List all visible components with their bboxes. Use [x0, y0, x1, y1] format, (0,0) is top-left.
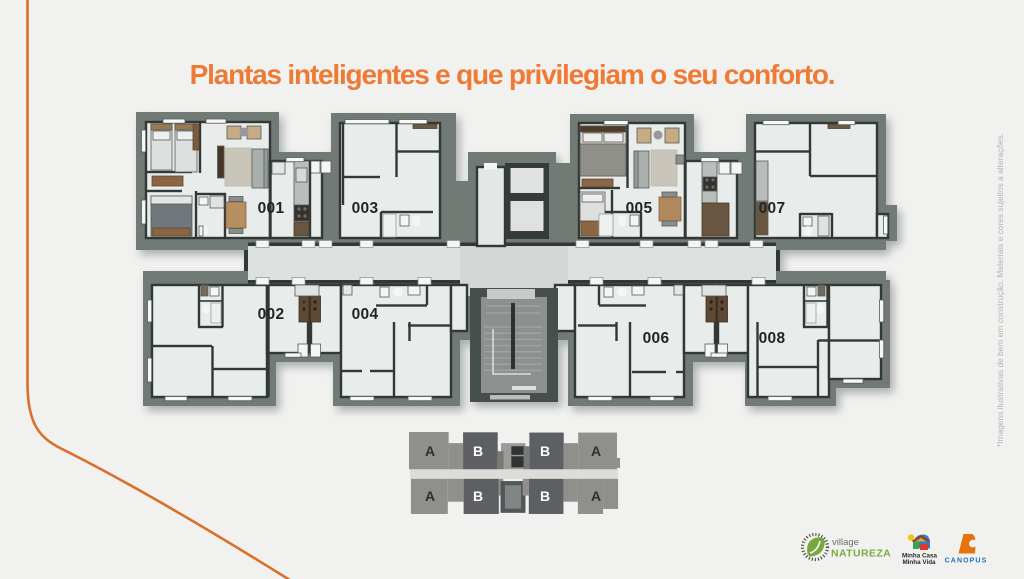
svg-text:A: A: [591, 443, 601, 459]
svg-text:Minha Vida: Minha Vida: [902, 559, 936, 566]
svg-text:B: B: [473, 443, 483, 459]
svg-text:A: A: [591, 488, 601, 504]
svg-text:Plantas inteligentes e que pri: Plantas inteligentes e que privilegiam o…: [190, 59, 835, 90]
svg-text:*Imagens ilustrativas de bem e: *Imagens ilustrativas de bem em construç…: [995, 133, 1005, 447]
svg-text:B: B: [473, 488, 483, 504]
svg-text:005: 005: [626, 200, 653, 217]
svg-text:village: village: [832, 537, 859, 548]
svg-text:NATUREZA: NATUREZA: [831, 548, 891, 560]
svg-text:A: A: [425, 443, 435, 459]
svg-text:004: 004: [352, 306, 379, 323]
svg-text:008: 008: [759, 330, 786, 347]
svg-text:006: 006: [643, 330, 670, 347]
svg-text:003: 003: [352, 200, 379, 217]
svg-text:007: 007: [759, 200, 786, 217]
svg-text:A: A: [425, 488, 435, 504]
svg-text:B: B: [540, 488, 550, 504]
svg-text:CANOPUS: CANOPUS: [945, 558, 988, 565]
svg-text:B: B: [540, 443, 550, 459]
svg-text:001: 001: [258, 200, 285, 217]
svg-text:002: 002: [258, 306, 285, 323]
